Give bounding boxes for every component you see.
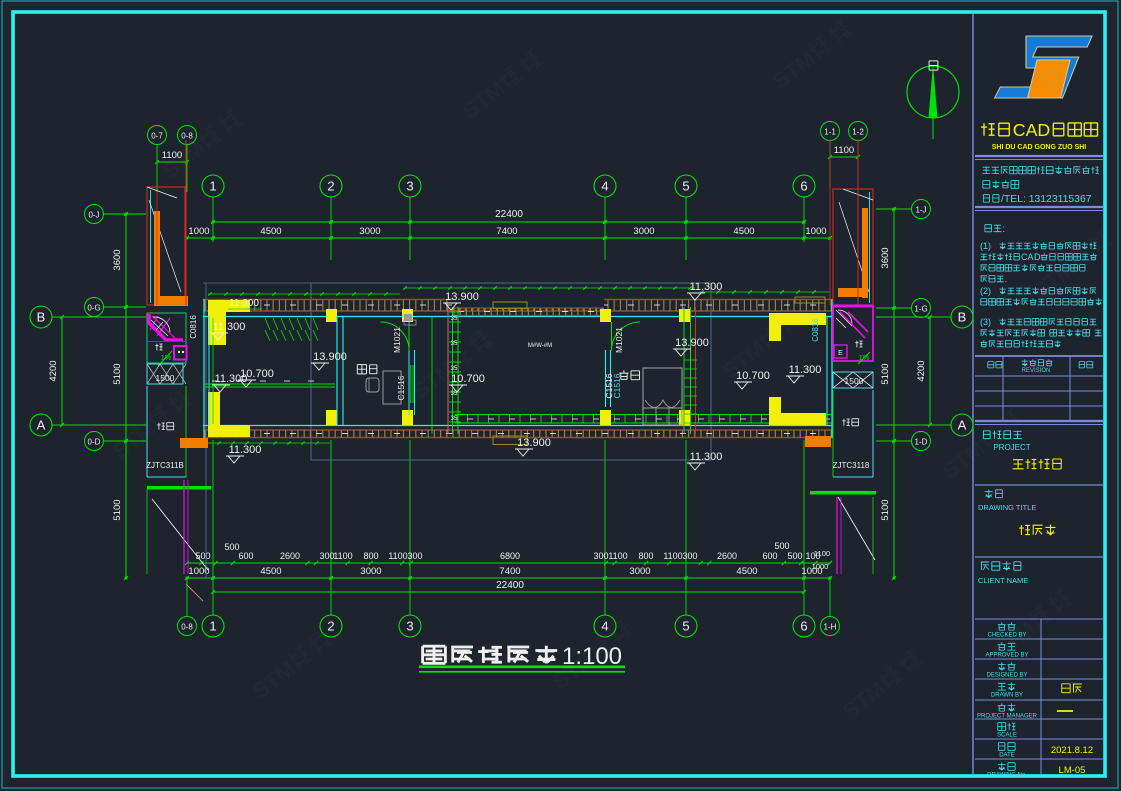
svg-text:B: B xyxy=(958,310,967,325)
svg-text:.: . xyxy=(1005,274,1008,284)
svg-text:(2): (2) xyxy=(980,286,991,296)
svg-text:3: 3 xyxy=(406,619,413,634)
svg-text:2600: 2600 xyxy=(280,551,300,561)
svg-text:800: 800 xyxy=(638,551,653,561)
svg-text:300: 300 xyxy=(407,551,422,561)
svg-text:500: 500 xyxy=(774,541,789,551)
svg-text:35: 35 xyxy=(451,341,458,347)
svg-text:DRAWN BY: DRAWN BY xyxy=(991,693,1023,699)
svg-text:1-H: 1-H xyxy=(824,623,837,632)
svg-text:0-7: 0-7 xyxy=(151,132,163,141)
svg-text:13.900: 13.900 xyxy=(445,291,479,303)
svg-text:M1021: M1021 xyxy=(392,327,402,353)
svg-text:PROJECT: PROJECT xyxy=(993,443,1030,452)
svg-text:1000: 1000 xyxy=(188,226,209,237)
svg-text:11.300: 11.300 xyxy=(229,444,262,456)
svg-text:10.700: 10.700 xyxy=(736,370,770,382)
svg-text:1000: 1000 xyxy=(812,562,829,571)
svg-text:3600: 3600 xyxy=(880,247,891,268)
svg-text:4500: 4500 xyxy=(260,226,281,237)
svg-text:0-G: 0-G xyxy=(87,304,100,313)
svg-text:1: 1 xyxy=(209,619,216,634)
svg-text:A: A xyxy=(37,418,46,433)
svg-text:3: 3 xyxy=(406,179,413,194)
svg-text:1500: 1500 xyxy=(845,376,864,386)
svg-text:4200: 4200 xyxy=(916,360,927,381)
svg-text:5: 5 xyxy=(682,619,689,634)
svg-text:4: 4 xyxy=(601,619,608,634)
svg-text:CAD: CAD xyxy=(1013,120,1050,140)
svg-text:4500: 4500 xyxy=(260,566,281,577)
svg-text:5100: 5100 xyxy=(112,363,123,384)
svg-text:0-8: 0-8 xyxy=(181,623,193,632)
svg-text::: : xyxy=(1002,224,1005,235)
svg-text:4200: 4200 xyxy=(48,360,59,381)
svg-text:B: B xyxy=(37,310,46,325)
svg-text:13.900: 13.900 xyxy=(517,437,551,449)
svg-text:5100: 5100 xyxy=(112,499,123,520)
svg-text:22400: 22400 xyxy=(496,580,524,591)
svg-text:6800: 6800 xyxy=(500,551,520,561)
svg-text:13.900: 13.900 xyxy=(313,351,347,363)
svg-text:3000: 3000 xyxy=(359,226,380,237)
svg-text:1: 1 xyxy=(209,179,216,194)
svg-text:2: 2 xyxy=(327,179,334,194)
svg-text:500: 500 xyxy=(787,551,802,561)
svg-text:1100: 1100 xyxy=(162,150,182,161)
svg-text:APPROVED BY: APPROVED BY xyxy=(985,653,1028,659)
svg-text:5: 5 xyxy=(682,179,689,194)
svg-text:1100: 1100 xyxy=(388,551,407,561)
svg-text:7400: 7400 xyxy=(496,226,517,237)
svg-text:10.700: 10.700 xyxy=(451,373,485,385)
svg-text:1100: 1100 xyxy=(814,549,830,558)
svg-text:1-2: 1-2 xyxy=(852,128,864,137)
svg-text:2: 2 xyxy=(327,619,334,634)
svg-text:ZJTC311B: ZJTC311B xyxy=(146,461,184,470)
svg-text:3000: 3000 xyxy=(360,566,381,577)
svg-text:4500: 4500 xyxy=(733,226,754,237)
svg-text:3000: 3000 xyxy=(633,226,654,237)
svg-text:M#W-#M: M#W-#M xyxy=(528,343,552,349)
svg-text:300: 300 xyxy=(319,551,334,561)
svg-text:4500: 4500 xyxy=(736,566,757,577)
svg-text:1-G: 1-G xyxy=(914,305,927,314)
svg-text:1100: 1100 xyxy=(608,551,627,561)
svg-text:3600: 3600 xyxy=(112,249,123,270)
svg-text:CHECKED BY: CHECKED BY xyxy=(987,633,1026,639)
svg-text:600: 600 xyxy=(762,551,777,561)
svg-text:M1021: M1021 xyxy=(614,327,624,353)
svg-text:11.300: 11.300 xyxy=(690,451,723,463)
svg-text:SCALE: SCALE xyxy=(997,733,1017,739)
svg-text:4: 4 xyxy=(601,179,608,194)
svg-text:1-1: 1-1 xyxy=(824,128,836,137)
svg-text:PROJECT MANAGER: PROJECT MANAGER xyxy=(977,714,1038,720)
svg-text:A: A xyxy=(958,418,967,433)
svg-text:1100: 1100 xyxy=(834,145,854,156)
svg-text:1500: 1500 xyxy=(156,373,175,383)
svg-text:(1): (1) xyxy=(980,241,991,251)
svg-text:300: 300 xyxy=(682,551,697,561)
svg-text:3000: 3000 xyxy=(629,566,650,577)
svg-text:11.300: 11.300 xyxy=(789,364,822,376)
svg-text:E: E xyxy=(838,350,843,357)
svg-text:SHI DU CAD GONG ZUO SHI: SHI DU CAD GONG ZUO SHI xyxy=(992,144,1087,151)
svg-text:LM-05: LM-05 xyxy=(1059,765,1086,776)
svg-text:0-8: 0-8 xyxy=(181,132,193,141)
svg-text:/TEL: 13123115367: /TEL: 13123115367 xyxy=(1001,194,1092,205)
svg-text:22400: 22400 xyxy=(495,209,523,220)
svg-text:1100: 1100 xyxy=(663,551,682,561)
svg-text:5100: 5100 xyxy=(880,499,891,520)
svg-text:DRAWING No.: DRAWING No. xyxy=(987,773,1027,779)
svg-text:1-D: 1-D xyxy=(915,438,928,447)
svg-text:C0816: C0816 xyxy=(811,318,820,342)
svg-text:11.300: 11.300 xyxy=(690,281,723,293)
svg-text:600: 600 xyxy=(238,551,253,561)
svg-text:(3): (3) xyxy=(980,317,991,327)
svg-text:C0816: C0816 xyxy=(189,315,198,339)
svg-text:REVISION: REVISION xyxy=(1022,368,1051,374)
svg-text:35: 35 xyxy=(451,416,458,422)
svg-text:800: 800 xyxy=(363,551,378,561)
svg-text:A: A xyxy=(1028,252,1034,262)
svg-text:CLIENT NAME: CLIENT NAME xyxy=(978,576,1028,585)
svg-text:1100: 1100 xyxy=(333,551,352,561)
svg-text:35: 35 xyxy=(451,366,458,372)
svg-text:11.300: 11.300 xyxy=(213,321,246,333)
svg-text:300: 300 xyxy=(593,551,608,561)
svg-text:DRAWING TITLE: DRAWING TITLE xyxy=(978,503,1036,512)
svg-text:5100: 5100 xyxy=(880,363,891,384)
svg-text:6: 6 xyxy=(800,179,807,194)
svg-text:500: 500 xyxy=(224,542,239,552)
svg-text:7400: 7400 xyxy=(499,566,520,577)
svg-text:1-J: 1-J xyxy=(915,206,926,215)
svg-text:500: 500 xyxy=(195,551,210,561)
svg-text:DATE: DATE xyxy=(999,753,1015,759)
svg-text:35: 35 xyxy=(451,316,458,322)
svg-text:DESIGNED BY: DESIGNED BY xyxy=(986,673,1027,679)
svg-text:D: D xyxy=(1034,252,1041,262)
svg-text:2600: 2600 xyxy=(717,551,737,561)
svg-text:2021.8.12: 2021.8.12 xyxy=(1051,745,1093,756)
svg-text:0-J: 0-J xyxy=(88,211,99,220)
svg-text:ZJTC3118: ZJTC3118 xyxy=(833,461,870,470)
svg-text:6: 6 xyxy=(800,619,807,634)
svg-text:11.300: 11.300 xyxy=(229,298,259,309)
svg-text:1000: 1000 xyxy=(805,226,826,237)
svg-text:13.900: 13.900 xyxy=(675,337,709,349)
svg-text:10.700: 10.700 xyxy=(240,368,274,380)
svg-text:0-D: 0-D xyxy=(88,438,101,447)
